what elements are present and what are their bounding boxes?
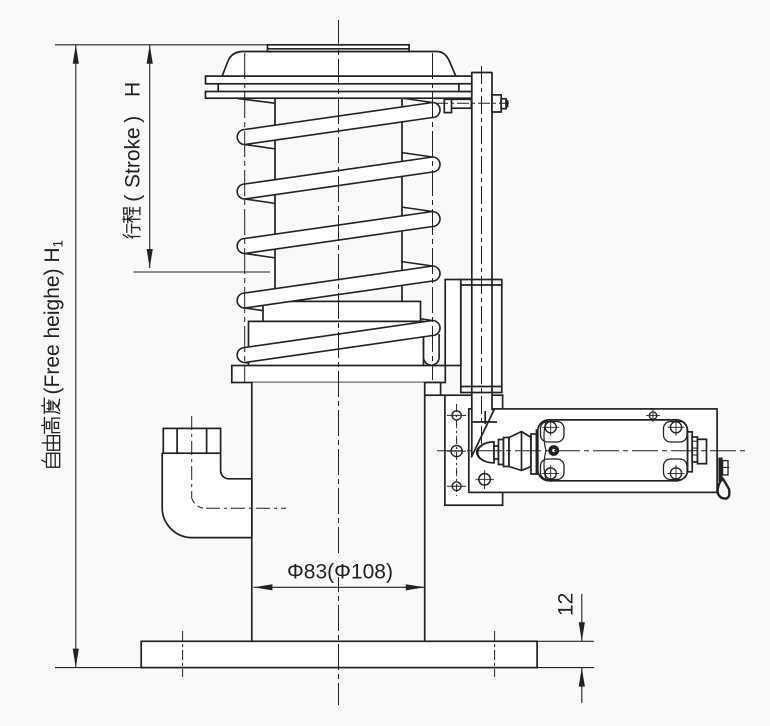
svg-text:(: ( (121, 195, 144, 202)
svg-text:H: H (121, 82, 144, 97)
svg-text:12: 12 (555, 593, 578, 616)
svg-text:(Free heighe) H1: (Free heighe) H1 (41, 240, 66, 395)
svg-text:Stroke: Stroke (121, 127, 144, 188)
svg-text:Φ83(Φ108): Φ83(Φ108) (287, 561, 393, 584)
svg-text:): ) (121, 116, 144, 123)
